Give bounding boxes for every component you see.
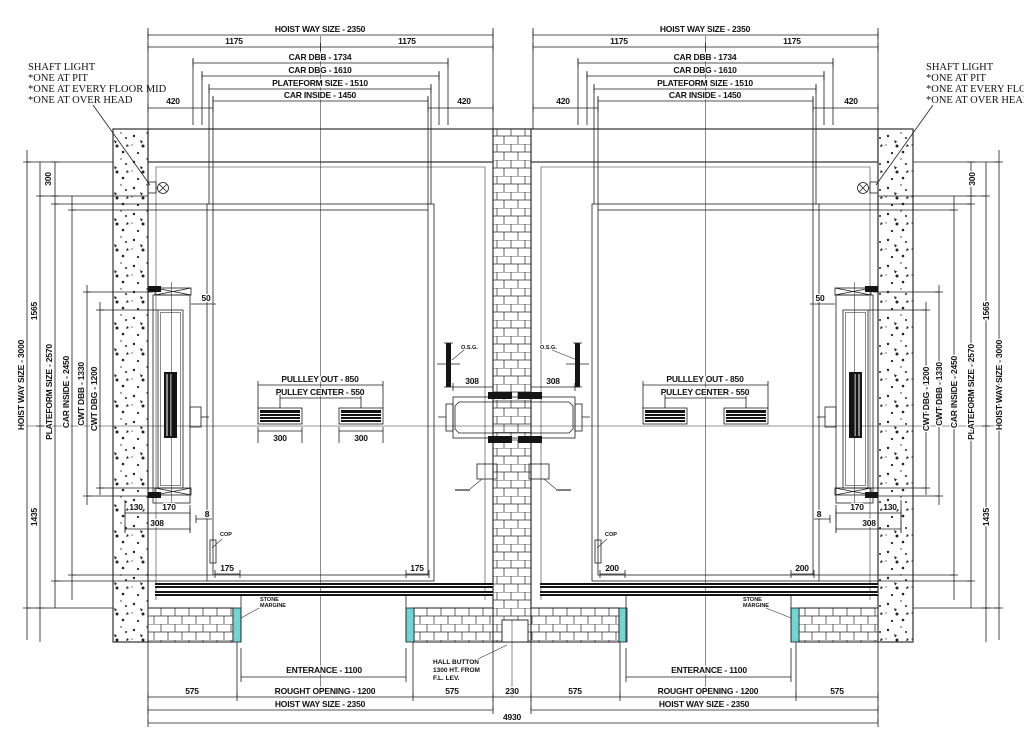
dim-308: 308: [150, 518, 164, 528]
dim-1175: 1175: [783, 36, 801, 46]
dim-420: 420: [166, 96, 180, 106]
right-concrete-column: [878, 129, 913, 642]
elevator-hoistway-plan-drawing: HOIST WAY SIZE - 2350 1175 1175 CAR DBB …: [0, 0, 1024, 736]
dim-cwt-dbb: CWT DBB - 1330: [76, 362, 86, 426]
dim-50: 50: [815, 293, 825, 303]
dim-platform: PLATEFORM SIZE - 1510: [657, 78, 753, 88]
dim-hoistway-top-left: HOIST WAY SIZE - 2350: [275, 24, 366, 34]
dim-rough-opening: ROUGHT OPENING - 1200: [275, 686, 376, 696]
dim-hoistway-bottom: HOIST WAY SIZE - 2350: [275, 699, 366, 709]
dim-1565: 1565: [29, 301, 39, 320]
dim-rough-opening: ROUGHT OPENING - 1200: [658, 686, 759, 696]
door-text-right: 200 200 COP STONE MARGINE ENTERANCE - 11…: [597, 532, 809, 675]
shaft-light-note-line1: SHAFT LIGHT: [28, 62, 96, 73]
dim-car-dbb: CAR DBB - 1734: [674, 52, 737, 62]
dim-420: 420: [457, 96, 471, 106]
osg-label-left: O.S.G.: [461, 345, 478, 351]
stone-margin-label: MARGINE: [743, 603, 769, 609]
dim-200: 200: [795, 563, 809, 573]
osg-governor-right: [575, 343, 580, 387]
dim-total-4930: 4930: [503, 712, 522, 722]
hall-button-note-line1: HALL BUTTON: [433, 659, 479, 666]
dim-1175: 1175: [225, 36, 243, 46]
dim-308: 308: [862, 518, 876, 528]
dim-575: 575: [830, 686, 844, 696]
dim-pulley-300: 300: [354, 433, 368, 443]
bottom-wall-brick: [531, 608, 619, 642]
dim-car-inside-2450: CAR INSIDE - 2450: [61, 355, 71, 428]
dim-hoistway-3000: HOIST WAY SIZE - 3000: [994, 339, 1004, 430]
dim-200: 200: [605, 563, 619, 573]
dim-1565: 1565: [981, 301, 991, 320]
shaft-light-note-line3: *ONE AT EVERY FLOOR MID: [926, 84, 1024, 95]
cop-label: COP: [220, 532, 232, 538]
dim-8: 8: [205, 509, 210, 519]
side-dimension-text-left: HOIST WAY SIZE - 3000 1565 1435 300 PLAT…: [16, 172, 99, 526]
top-dimension-text-right: HOIST WAY SIZE - 2350 1175 1175 CAR DBB …: [556, 24, 858, 106]
dim-308-machine: 308: [546, 376, 560, 386]
dim-575: 575: [185, 686, 199, 696]
dim-308-machine: 308: [465, 376, 479, 386]
door-text-left: 175 175 COP STONE MARGINE ENTERANCE - 11…: [212, 532, 424, 675]
dim-8: 8: [817, 509, 822, 519]
dim-car-inside-2450: CAR INSIDE - 2450: [949, 355, 959, 428]
hall-button-note: HALL BUTTON 1300 HT. FROM F.L. LEV.: [433, 645, 507, 682]
dim-230: 230: [505, 686, 519, 696]
hall-button-note-line2: 1300 HT. FROM: [433, 667, 480, 674]
side-dimension-text-right: HOIST WAY SIZE - 3000 1565 1435 300 PLAT…: [921, 172, 1004, 526]
dim-enterance: ENTERANCE - 1100: [671, 665, 747, 675]
dim-300: 300: [967, 172, 977, 186]
dim-car-dbg: CAR DBG - 1610: [288, 65, 352, 75]
shaft-light-note-line4: *ONE AT OVER HEAD: [926, 95, 1024, 106]
dim-175: 175: [410, 563, 424, 573]
shaft-light-note-line3: *ONE AT EVERY FLOOR MID: [28, 84, 167, 95]
hall-button-box: [502, 620, 528, 642]
left-concrete-column: [113, 129, 148, 642]
bottom-wall-brick: [148, 608, 233, 642]
dim-pulley-out: PULLLEY OUT - 850: [281, 374, 359, 384]
dim-300: 300: [43, 172, 53, 186]
shaft-light-note-line1: SHAFT LIGHT: [926, 62, 994, 73]
dim-pulley-center: PULLEY CENTER - 550: [661, 387, 750, 397]
dim-platform-2570: PLATEFORM SIZE - 2570: [44, 344, 54, 440]
top-dimension-text-left: HOIST WAY SIZE - 2350 1175 1175 CAR DBB …: [166, 24, 471, 106]
stone-margin-strip: [791, 608, 799, 642]
bottom-dimension-text: 575 ROUGHT OPENING - 1200 575 230 575 RO…: [185, 686, 844, 722]
dim-car-dbg: CAR DBG - 1610: [673, 65, 737, 75]
dim-platform: PLATEFORM SIZE - 1510: [272, 78, 368, 88]
cop-label: COP: [605, 532, 617, 538]
dim-1435: 1435: [981, 507, 991, 526]
hall-button-note-line3: F.L. LEV.: [433, 675, 460, 682]
shaft-light-note-line2: *ONE AT PIT: [926, 73, 986, 84]
dim-pulley-center: PULLEY CENTER - 550: [276, 387, 365, 397]
dim-130: 130: [883, 502, 897, 512]
dim-170: 170: [850, 502, 864, 512]
stone-margin-strip: [233, 608, 241, 642]
dim-575: 575: [445, 686, 459, 696]
dim-1175: 1175: [398, 36, 416, 46]
dim-platform-2570: PLATEFORM SIZE - 2570: [966, 344, 976, 440]
dim-1175: 1175: [610, 36, 628, 46]
shaft-light-note-line4: *ONE AT OVER HEAD: [28, 95, 133, 106]
dim-1435: 1435: [29, 507, 39, 526]
dim-175: 175: [220, 563, 234, 573]
shaft-light-note-line2: *ONE AT PIT: [28, 73, 88, 84]
bottom-wall-brick: [799, 608, 878, 642]
dim-pulley-300: 300: [273, 433, 287, 443]
dim-enterance: ENTERANCE - 1100: [286, 665, 362, 675]
dim-cwt-dbg: CWT DBG - 1200: [921, 366, 931, 431]
center-divider-wall-brick: [493, 129, 531, 642]
stone-margin-strip: [406, 608, 414, 642]
dim-50: 50: [201, 293, 211, 303]
dim-car-dbb: CAR DBB - 1734: [289, 52, 352, 62]
osg-label-right: O.S.G.: [540, 345, 557, 351]
dim-130: 130: [129, 502, 143, 512]
dim-hoistway-bottom: HOIST WAY SIZE - 2350: [659, 699, 750, 709]
stone-margin-label: MARGINE: [260, 603, 286, 609]
dim-pulley-out: PULLLEY OUT - 850: [666, 374, 744, 384]
dim-car-inside: CAR INSIDE - 1450: [669, 90, 742, 100]
dim-cwt-dbb: CWT DBB - 1330: [934, 362, 944, 426]
dim-420: 420: [844, 96, 858, 106]
dim-car-inside: CAR INSIDE - 1450: [284, 90, 357, 100]
dim-cwt-dbg: CWT DBG - 1200: [89, 366, 99, 431]
dim-170: 170: [162, 502, 176, 512]
bottom-wall-brick: [414, 608, 493, 642]
osg-governor-left: [446, 343, 451, 387]
dim-hoistway-top-right: HOIST WAY SIZE - 2350: [660, 24, 751, 34]
dim-420: 420: [556, 96, 570, 106]
dim-575: 575: [568, 686, 582, 696]
dim-hoistway-3000: HOIST WAY SIZE - 3000: [16, 339, 26, 430]
